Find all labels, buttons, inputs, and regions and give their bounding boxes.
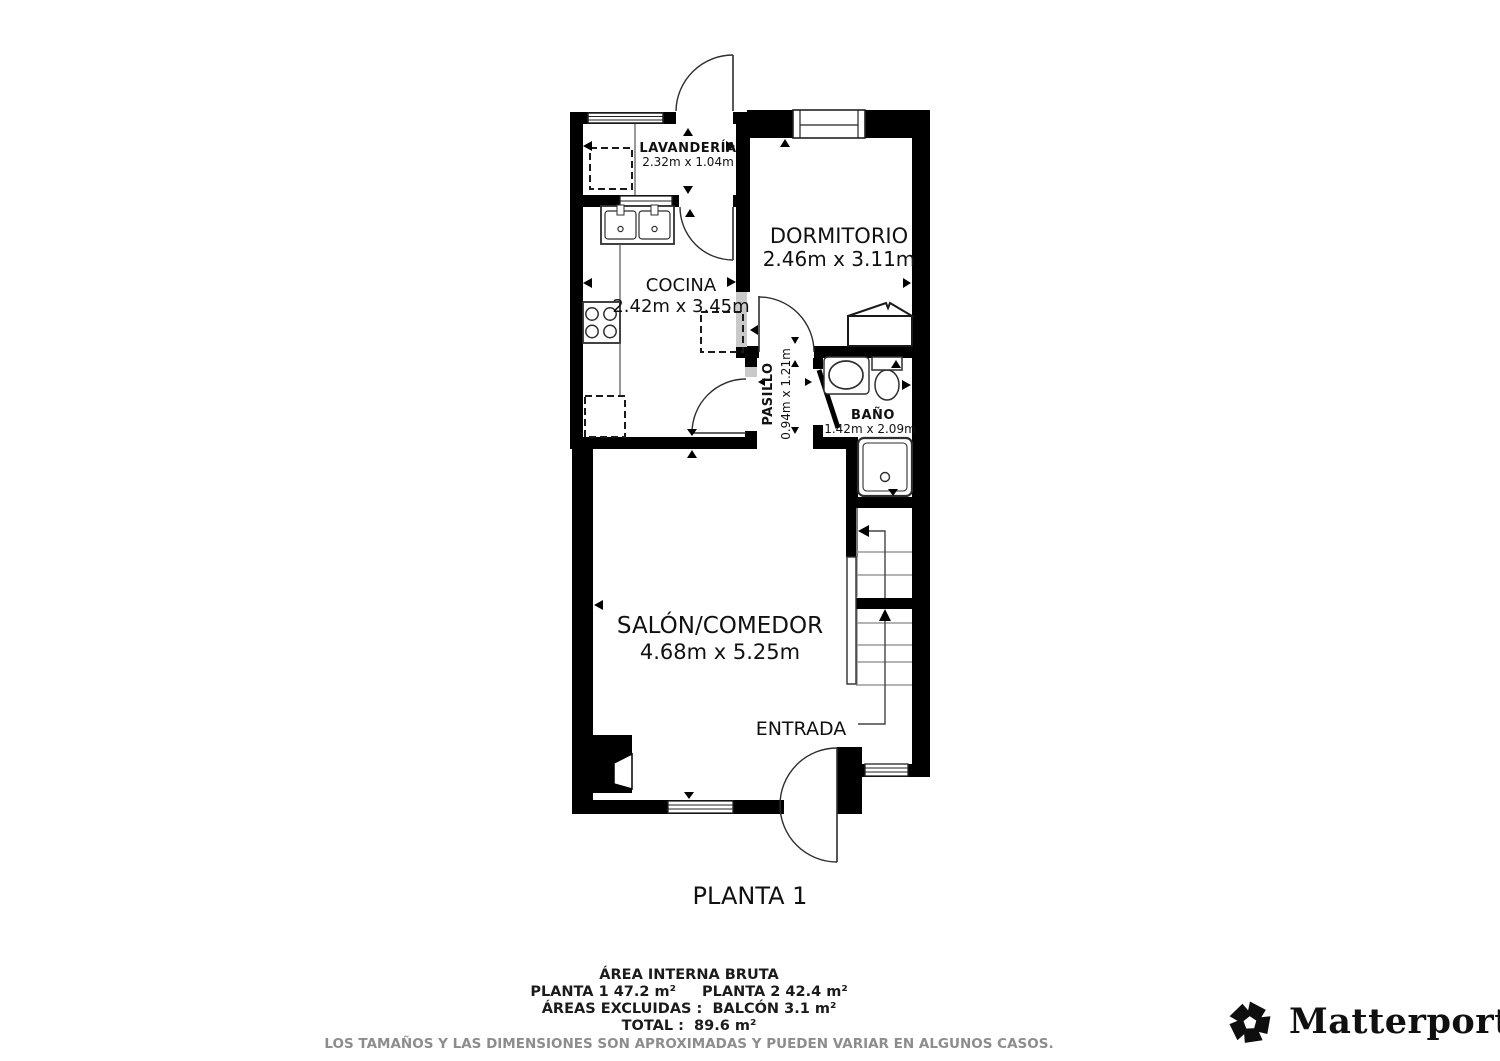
bathroom-sink xyxy=(824,357,869,394)
dims-pasillo: 0.94m x 1.21m xyxy=(779,348,793,440)
appliance-laundry xyxy=(590,148,632,189)
summary-heading: ÁREA INTERNA BRUTA xyxy=(189,967,1189,984)
label-cocina: COCINA xyxy=(646,275,717,296)
wall-stair-mid xyxy=(848,598,912,609)
wall-kitchen-living xyxy=(583,437,757,449)
label-lavanderia: LAVANDERÍA xyxy=(639,140,736,156)
appliance-kitchen-2 xyxy=(585,396,625,437)
doors xyxy=(676,55,838,862)
kitchen-sink xyxy=(601,205,674,244)
wall-openings xyxy=(676,111,837,815)
label-entrada: ENTRADA xyxy=(756,718,847,740)
wall-bedroom-bottom-right xyxy=(814,346,930,358)
bed xyxy=(848,303,912,346)
wall-shower-bottom xyxy=(846,497,912,508)
window-living xyxy=(668,801,733,813)
window-bedroom xyxy=(793,110,865,138)
stair-direction-lines xyxy=(858,531,885,724)
threshold-hall-kitchen xyxy=(745,367,757,377)
opening-laundry-exterior xyxy=(676,111,733,125)
wall-right xyxy=(912,110,930,777)
wall-kitchen-bedroom xyxy=(736,112,750,292)
matterport-wordmark: Matterport® xyxy=(1289,1001,1500,1042)
label-salon: SALÓN/COMEDOR xyxy=(617,611,823,639)
matterport-name: Matterport xyxy=(1289,1001,1500,1042)
bed-pillow xyxy=(848,303,912,316)
label-dormitorio: DORMITORIO xyxy=(770,224,908,248)
wall-hall-right-bottom xyxy=(813,425,823,439)
door-kitchen-hall xyxy=(692,379,746,433)
label-pasillo: PASILLO xyxy=(761,362,776,425)
floorplan-drawing: LAVANDERÍA 2.32m x 1.04m DORMITORIO 2.46… xyxy=(0,0,1500,1061)
opening-entry xyxy=(784,799,837,815)
wall-left-upper xyxy=(570,112,583,449)
wall-hall-right-top xyxy=(813,358,823,369)
summary-disclaimer: LOS TAMAÑOS Y LAS DIMENSIONES SON APROXI… xyxy=(189,1036,1189,1053)
dims-bano: 1.42m x 2.09m xyxy=(824,422,916,436)
dims-cocina: 2.42m x 3.45m xyxy=(612,296,749,317)
floor-title: PLANTA 1 xyxy=(693,882,808,910)
wall-hall-left-top xyxy=(745,358,757,367)
dims-dormitorio: 2.46m x 3.11m xyxy=(763,247,916,271)
window-stairs xyxy=(865,764,908,776)
wall-left-lower xyxy=(572,437,593,814)
room-labels: LAVANDERÍA 2.32m x 1.04m DORMITORIO 2.46… xyxy=(612,140,915,910)
stair-arrow-up-icon xyxy=(879,609,891,621)
stair-handrail xyxy=(847,557,856,684)
wall-entry-post xyxy=(837,747,862,814)
wall-bedroom-bottom-left xyxy=(736,346,759,358)
summary-plantas: PLANTA 1 47.2 m²PLANTA 2 42.4 m² xyxy=(189,984,1189,1001)
bed-body xyxy=(848,316,912,346)
summary-planta1: PLANTA 1 47.2 m² xyxy=(530,984,676,1000)
window-laundry-kitchen xyxy=(620,196,672,206)
opening-laundry-kitchen xyxy=(679,194,733,208)
door-laundry-exterior xyxy=(676,55,733,111)
matterport-logo-icon xyxy=(1222,994,1278,1050)
dims-salon: 4.68m x 5.25m xyxy=(640,640,800,664)
dims-lavanderia: 2.32m x 1.04m xyxy=(642,155,734,169)
label-bano: BAÑO xyxy=(851,407,895,423)
floorplan-page: LAVANDERÍA 2.32m x 1.04m DORMITORIO 2.46… xyxy=(0,0,1500,1061)
summary-planta2: PLANTA 2 42.4 m² xyxy=(702,984,848,1000)
shower xyxy=(858,438,912,496)
door-bedroom xyxy=(759,296,814,352)
summary-excluded: ÁREAS EXCLUIDAS : BALCÓN 3.1 m² xyxy=(189,1001,1189,1018)
window-laundry xyxy=(588,113,663,123)
staircase xyxy=(847,508,912,724)
summary-total: TOTAL : 89.6 m² xyxy=(189,1018,1189,1035)
area-summary: ÁREA INTERNA BRUTA PLANTA 1 47.2 m²PLANT… xyxy=(189,967,1189,1053)
stair-arrow-left-icon xyxy=(858,525,869,537)
